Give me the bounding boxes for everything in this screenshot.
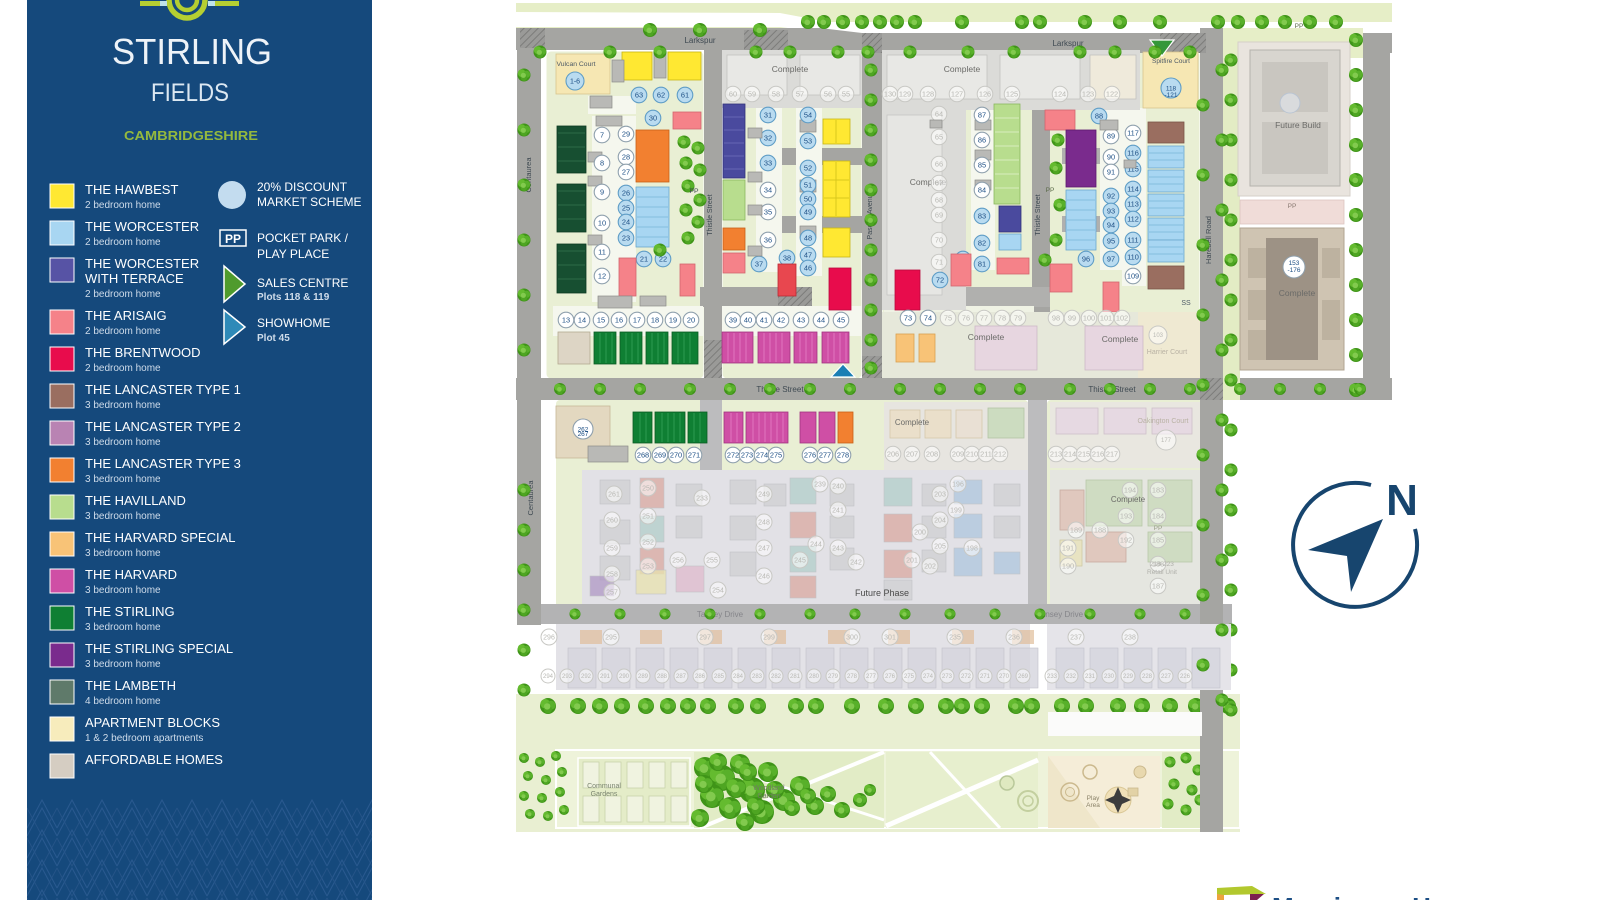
svg-text:203: 203	[934, 492, 946, 499]
svg-text:33: 33	[764, 159, 772, 168]
svg-text:244: 244	[810, 542, 822, 549]
svg-text:191: 191	[1062, 544, 1074, 553]
svg-text:66: 66	[935, 160, 943, 169]
svg-text:187: 187	[1152, 582, 1164, 591]
svg-text:41: 41	[760, 316, 768, 325]
svg-text:43: 43	[797, 316, 805, 325]
svg-text:73: 73	[904, 314, 912, 323]
svg-text:11: 11	[598, 248, 606, 257]
svg-text:29: 29	[622, 130, 630, 139]
svg-text:3 bedroom home: 3 bedroom home	[85, 511, 161, 522]
svg-text:PLAY PLACE: PLAY PLACE	[257, 247, 329, 261]
svg-text:92: 92	[1107, 192, 1115, 201]
svg-text:MARKET SCHEME: MARKET SCHEME	[257, 195, 361, 209]
svg-text:299: 299	[763, 635, 775, 642]
svg-text:38: 38	[783, 254, 791, 263]
svg-text:Morrissey Homes: Morrissey Homes	[1272, 892, 1504, 900]
svg-text:117: 117	[1127, 129, 1139, 138]
svg-text:3 bedroom home: 3 bedroom home	[85, 622, 161, 633]
svg-text:20: 20	[687, 316, 695, 325]
svg-text:242: 242	[850, 560, 862, 567]
svg-text:Future Build: Future Build	[1275, 120, 1321, 130]
svg-text:268: 268	[637, 451, 649, 460]
svg-text:204: 204	[934, 518, 946, 525]
svg-text:SALES CENTRE: SALES CENTRE	[257, 276, 348, 290]
svg-text:114: 114	[1127, 185, 1139, 194]
svg-text:251: 251	[642, 514, 654, 521]
svg-text:PP: PP	[225, 232, 241, 246]
svg-text:113: 113	[1127, 200, 1139, 209]
svg-text:233: 233	[1047, 674, 1058, 680]
svg-text:61: 61	[681, 91, 689, 100]
svg-text:2 bedroom home: 2 bedroom home	[85, 200, 161, 211]
svg-text:272: 272	[961, 674, 972, 680]
svg-text:291: 291	[600, 674, 611, 680]
svg-text:67: 67	[935, 179, 943, 188]
svg-text:284: 284	[733, 674, 744, 680]
svg-text:240: 240	[832, 484, 844, 491]
svg-text:88: 88	[1095, 112, 1103, 121]
svg-text:110: 110	[1127, 253, 1139, 262]
svg-text:243: 243	[832, 546, 844, 553]
svg-text:85: 85	[978, 161, 986, 170]
svg-text:93: 93	[1107, 207, 1115, 216]
svg-text:2 bedroom home: 2 bedroom home	[85, 237, 161, 248]
svg-text:THE STIRLING SPECIAL: THE STIRLING SPECIAL	[85, 641, 233, 656]
svg-text:285: 285	[714, 674, 725, 680]
svg-text:209: 209	[952, 450, 964, 459]
svg-text:40: 40	[744, 316, 752, 325]
svg-text:34: 34	[764, 186, 772, 195]
svg-text:Larkspur: Larkspur	[684, 36, 715, 45]
svg-text:70: 70	[935, 236, 943, 245]
svg-text:52: 52	[804, 164, 812, 173]
svg-text:-176: -176	[1287, 267, 1300, 274]
svg-text:THE LAMBETH: THE LAMBETH	[85, 678, 176, 693]
svg-text:254: 254	[712, 588, 724, 595]
svg-text:270: 270	[670, 451, 682, 460]
svg-text:THE LANCASTER TYPE 1: THE LANCASTER TYPE 1	[85, 382, 241, 397]
svg-text:Garden: Garden	[757, 793, 780, 800]
svg-text:THE BRENTWOOD: THE BRENTWOOD	[85, 345, 201, 360]
svg-text:230: 230	[1104, 674, 1115, 680]
svg-text:83: 83	[978, 212, 986, 221]
svg-text:1 & 2 bedroom apartments: 1 & 2 bedroom apartments	[85, 733, 203, 744]
svg-text:213: 213	[1050, 450, 1062, 459]
svg-text:90: 90	[1107, 153, 1115, 162]
svg-text:4 bedroom home: 4 bedroom home	[85, 696, 161, 707]
svg-text:275: 275	[770, 451, 782, 460]
svg-text:183: 183	[1152, 486, 1164, 495]
svg-text:63: 63	[635, 91, 643, 100]
svg-text:272: 272	[727, 451, 739, 460]
svg-text:37: 37	[755, 260, 763, 269]
svg-text:196: 196	[952, 482, 964, 489]
svg-text:THE WORCESTER: THE WORCESTER	[85, 219, 199, 234]
svg-text:269: 269	[654, 451, 666, 460]
svg-text:296: 296	[543, 635, 555, 642]
svg-text:91: 91	[1107, 168, 1115, 177]
svg-text:237: 237	[1070, 635, 1082, 642]
svg-text:238: 238	[1124, 635, 1136, 642]
svg-text:279: 279	[828, 674, 839, 680]
svg-text:277: 277	[819, 451, 831, 460]
svg-text:12: 12	[598, 272, 606, 281]
svg-text:Plots 118 & 119: Plots 118 & 119	[257, 292, 330, 303]
svg-text:86: 86	[978, 136, 986, 145]
svg-text:THE HAVILLAND: THE HAVILLAND	[85, 493, 186, 508]
svg-text:280: 280	[809, 674, 820, 680]
svg-text:30: 30	[649, 114, 657, 123]
svg-text:Tansey Drive: Tansey Drive	[697, 610, 744, 619]
svg-text:Complete: Complete	[1102, 334, 1139, 344]
svg-text:217: 217	[1106, 450, 1118, 459]
svg-text:103: 103	[1153, 333, 1164, 339]
svg-text:49: 49	[804, 208, 812, 217]
svg-text:50: 50	[804, 195, 812, 204]
svg-text:102: 102	[1116, 314, 1128, 323]
svg-text:35: 35	[764, 208, 772, 217]
svg-text:THE LANCASTER TYPE 3: THE LANCASTER TYPE 3	[85, 456, 241, 471]
svg-text:153: 153	[1289, 260, 1300, 267]
svg-text:2 bedroom home: 2 bedroom home	[85, 363, 161, 374]
svg-text:278: 278	[847, 674, 858, 680]
svg-text:273: 273	[942, 674, 953, 680]
svg-text:271: 271	[980, 674, 991, 680]
svg-text:Future Phase: Future Phase	[855, 588, 909, 598]
svg-text:232: 232	[1066, 674, 1077, 680]
svg-text:Complete: Complete	[944, 64, 981, 74]
svg-text:CAMBRIDGESHIRE: CAMBRIDGESHIRE	[124, 129, 258, 143]
svg-text:Gardens: Gardens	[591, 791, 618, 798]
svg-text:Spitfire Court: Spitfire Court	[1152, 58, 1190, 65]
svg-text:211: 211	[980, 450, 992, 459]
svg-text:99: 99	[1068, 314, 1076, 323]
svg-text:259: 259	[606, 546, 618, 553]
svg-text:POCKET PARK /: POCKET PARK /	[257, 231, 349, 245]
svg-text:45: 45	[837, 316, 845, 325]
svg-text:60: 60	[729, 90, 737, 99]
svg-text:190: 190	[1062, 562, 1074, 571]
svg-text:249: 249	[758, 492, 770, 499]
svg-text:64: 64	[935, 110, 943, 119]
svg-text:274: 274	[923, 674, 934, 680]
svg-text:2 bedroom home: 2 bedroom home	[85, 326, 161, 337]
svg-text:245: 245	[794, 558, 806, 565]
svg-text:-121: -121	[1164, 92, 1177, 99]
svg-text:301: 301	[884, 635, 896, 642]
svg-text:36: 36	[764, 236, 772, 245]
svg-text:276: 276	[804, 451, 816, 460]
svg-text:122: 122	[1106, 90, 1118, 99]
svg-text:AFFORDABLE HOMES: AFFORDABLE HOMES	[85, 752, 223, 767]
svg-text:Thistle Street: Thistle Street	[756, 385, 804, 394]
svg-text:46: 46	[804, 264, 812, 273]
svg-text:15: 15	[597, 316, 605, 325]
svg-text:116: 116	[1127, 149, 1139, 158]
svg-text:289: 289	[638, 674, 649, 680]
svg-text:282: 282	[771, 674, 782, 680]
svg-text:250: 250	[642, 486, 654, 493]
svg-text:Complete: Complete	[968, 332, 1005, 342]
svg-text:231: 231	[1085, 674, 1096, 680]
svg-text:267: 267	[578, 431, 589, 438]
svg-text:Thistle Street: Thistle Street	[707, 194, 714, 235]
svg-text:111: 111	[1127, 236, 1138, 245]
svg-text:293: 293	[562, 674, 573, 680]
svg-text:3 bedroom home: 3 bedroom home	[85, 659, 161, 670]
svg-text:253: 253	[642, 564, 654, 571]
svg-text:210: 210	[966, 450, 978, 459]
svg-text:258: 258	[606, 572, 618, 579]
svg-text:94: 94	[1107, 221, 1115, 230]
svg-text:PP: PP	[1288, 203, 1297, 210]
svg-text:188: 188	[1094, 526, 1106, 535]
svg-text:THE HARVARD SPECIAL: THE HARVARD SPECIAL	[85, 530, 236, 545]
svg-text:3 bedroom home: 3 bedroom home	[85, 437, 161, 448]
svg-text:3 bedroom home: 3 bedroom home	[85, 474, 161, 485]
svg-text:16: 16	[615, 316, 623, 325]
svg-text:275: 275	[904, 674, 915, 680]
svg-text:208: 208	[926, 450, 938, 459]
svg-text:227: 227	[1161, 674, 1172, 680]
svg-text:1-6: 1-6	[570, 79, 580, 86]
svg-text:76: 76	[962, 314, 970, 323]
svg-text:THE HAWBEST: THE HAWBEST	[85, 182, 178, 197]
svg-text:23: 23	[622, 234, 630, 243]
svg-text:95: 95	[1107, 237, 1115, 246]
svg-text:APARTMENT BLOCKS: APARTMENT BLOCKS	[85, 715, 220, 730]
svg-text:128: 128	[922, 90, 934, 99]
svg-text:257: 257	[606, 590, 618, 597]
svg-text:248: 248	[758, 520, 770, 527]
svg-text:205: 205	[934, 544, 946, 551]
svg-text:79: 79	[1014, 314, 1022, 323]
svg-text:75: 75	[944, 314, 952, 323]
svg-text:87: 87	[978, 111, 986, 120]
svg-text:SS: SS	[1181, 300, 1191, 307]
svg-text:56: 56	[824, 90, 832, 99]
svg-text:273: 273	[741, 451, 753, 460]
svg-text:177: 177	[1161, 438, 1172, 444]
svg-text:Thistle Street: Thistle Street	[1035, 194, 1042, 235]
svg-text:123: 123	[1082, 90, 1094, 99]
svg-text:65: 65	[935, 133, 943, 142]
svg-text:202: 202	[924, 564, 936, 571]
svg-text:101: 101	[1100, 314, 1112, 323]
svg-text:125: 125	[1006, 90, 1018, 99]
svg-text:7: 7	[600, 131, 604, 140]
svg-text:53: 53	[804, 137, 812, 146]
svg-text:THE LANCASTER TYPE 2: THE LANCASTER TYPE 2	[85, 419, 241, 434]
svg-text:Harrier Court: Harrier Court	[1147, 349, 1188, 356]
svg-text:THE WORCESTER: THE WORCESTER	[85, 256, 199, 271]
svg-text:17: 17	[633, 316, 641, 325]
svg-text:55: 55	[842, 90, 850, 99]
svg-text:127: 127	[951, 90, 963, 99]
svg-text:236: 236	[1008, 635, 1020, 642]
svg-text:247: 247	[758, 546, 770, 553]
svg-text:274: 274	[756, 451, 768, 460]
svg-text:89: 89	[1107, 132, 1115, 141]
svg-text:Complete: Complete	[895, 418, 930, 427]
svg-text:215: 215	[1078, 450, 1090, 459]
svg-text:97: 97	[1107, 255, 1115, 264]
svg-text:25: 25	[622, 204, 630, 213]
svg-text:199: 199	[950, 508, 962, 515]
svg-text:260: 260	[606, 518, 618, 525]
svg-text:59: 59	[748, 90, 756, 99]
svg-text:109: 109	[1127, 272, 1139, 281]
svg-text:290: 290	[619, 674, 630, 680]
svg-text:FIELDS: FIELDS	[151, 79, 229, 107]
svg-text:226: 226	[1180, 674, 1191, 680]
svg-text:96: 96	[1082, 255, 1090, 264]
svg-text:71: 71	[935, 258, 943, 267]
svg-text:Vulcan Court: Vulcan Court	[556, 61, 595, 68]
svg-text:185: 185	[1152, 536, 1164, 545]
svg-text:Woodland: Woodland	[753, 785, 785, 792]
svg-text:39: 39	[729, 316, 737, 325]
svg-text:189: 189	[1070, 526, 1082, 535]
svg-text:292: 292	[581, 674, 592, 680]
svg-text:246: 246	[758, 574, 770, 581]
svg-text:283: 283	[752, 674, 763, 680]
svg-text:216: 216	[1092, 450, 1104, 459]
svg-text:44: 44	[817, 316, 825, 325]
svg-text:8: 8	[600, 159, 604, 168]
svg-text:THE STIRLING: THE STIRLING	[85, 604, 175, 619]
svg-text:68: 68	[935, 196, 943, 205]
svg-text:Area: Area	[1086, 802, 1100, 809]
svg-text:207: 207	[906, 450, 918, 459]
svg-text:294: 294	[543, 674, 554, 680]
svg-text:124: 124	[1054, 90, 1066, 99]
svg-text:129: 129	[899, 90, 911, 99]
svg-text:206: 206	[887, 450, 899, 459]
svg-text:3 bedroom home: 3 bedroom home	[85, 585, 161, 596]
svg-text:255: 255	[706, 558, 718, 565]
svg-text:WITH TERRACE: WITH TERRACE	[85, 271, 184, 286]
svg-text:241: 241	[832, 508, 844, 515]
svg-text:198: 198	[966, 546, 978, 553]
svg-text:78: 78	[998, 314, 1006, 323]
svg-text:72: 72	[936, 276, 944, 285]
svg-text:32: 32	[764, 134, 772, 143]
svg-text:252: 252	[642, 540, 654, 547]
svg-text:STIRLING: STIRLING	[112, 31, 272, 72]
svg-text:229: 229	[1123, 674, 1134, 680]
svg-text:31: 31	[764, 111, 772, 120]
svg-text:281: 281	[790, 674, 801, 680]
svg-text:130: 130	[884, 90, 896, 99]
svg-text:214: 214	[1064, 450, 1076, 459]
svg-text:N: N	[1386, 476, 1418, 525]
svg-text:48: 48	[804, 234, 812, 243]
svg-text:286: 286	[695, 674, 706, 680]
svg-text:194: 194	[1124, 486, 1136, 495]
svg-text:256: 256	[672, 558, 684, 565]
svg-text:126: 126	[979, 90, 991, 99]
svg-text:3 bedroom home: 3 bedroom home	[85, 400, 161, 411]
svg-text:239: 239	[814, 482, 826, 489]
svg-text:193: 193	[1120, 512, 1132, 521]
svg-text:26: 26	[622, 189, 630, 198]
svg-text:82: 82	[978, 239, 986, 248]
svg-text:20% DISCOUNT: 20% DISCOUNT	[257, 180, 348, 194]
svg-text:42: 42	[777, 316, 785, 325]
svg-text:271: 271	[688, 451, 700, 460]
svg-text:57: 57	[796, 90, 804, 99]
svg-text:69: 69	[935, 211, 943, 220]
svg-text:218-223: 218-223	[1150, 561, 1174, 568]
svg-text:233: 233	[696, 496, 708, 503]
svg-text:269: 269	[1018, 674, 1029, 680]
svg-text:47: 47	[804, 251, 812, 260]
svg-text:228: 228	[1142, 674, 1153, 680]
svg-text:81: 81	[978, 260, 986, 269]
svg-text:74: 74	[924, 314, 932, 323]
svg-text:Communal: Communal	[587, 783, 621, 790]
svg-text:261: 261	[608, 492, 620, 499]
svg-text:54: 54	[804, 111, 812, 120]
svg-text:201: 201	[906, 558, 918, 565]
svg-text:77: 77	[980, 314, 988, 323]
svg-text:184: 184	[1152, 512, 1164, 521]
svg-text:PP: PP	[1046, 187, 1055, 194]
svg-text:200: 200	[914, 530, 926, 537]
svg-text:235: 235	[949, 635, 961, 642]
svg-text:THE ARISAIG: THE ARISAIG	[85, 308, 167, 323]
svg-text:62: 62	[657, 91, 665, 100]
svg-text:PP: PP	[689, 188, 699, 195]
svg-text:Complete: Complete	[772, 64, 809, 74]
svg-text:288: 288	[657, 674, 668, 680]
svg-text:84: 84	[978, 186, 986, 195]
svg-text:THE HARVARD: THE HARVARD	[85, 567, 177, 582]
svg-text:212: 212	[994, 450, 1006, 459]
svg-text:295: 295	[605, 635, 617, 642]
svg-text:277: 277	[866, 674, 877, 680]
svg-text:10: 10	[598, 219, 606, 228]
svg-text:297: 297	[699, 635, 711, 642]
svg-text:Play: Play	[1087, 795, 1100, 802]
svg-text:3 bedroom home: 3 bedroom home	[85, 548, 161, 559]
svg-text:18: 18	[651, 316, 659, 325]
svg-text:300: 300	[846, 635, 858, 642]
svg-text:28: 28	[622, 153, 630, 162]
svg-text:270: 270	[999, 674, 1010, 680]
svg-text:278: 278	[837, 451, 849, 460]
svg-text:2 bedroom home: 2 bedroom home	[85, 289, 161, 300]
svg-text:100: 100	[1083, 314, 1095, 323]
svg-text:192: 192	[1120, 536, 1132, 545]
svg-text:51: 51	[804, 181, 812, 190]
svg-text:Complete: Complete	[1279, 288, 1316, 298]
svg-text:PP: PP	[1154, 525, 1163, 532]
svg-text:287: 287	[676, 674, 687, 680]
svg-text:27: 27	[622, 168, 630, 177]
svg-text:98: 98	[1052, 314, 1060, 323]
svg-text:14: 14	[578, 316, 586, 325]
svg-text:SHOWHOME: SHOWHOME	[257, 316, 330, 330]
svg-text:112: 112	[1127, 215, 1139, 224]
svg-text:24: 24	[622, 218, 630, 227]
svg-text:PP: PP	[1295, 23, 1304, 30]
svg-text:19: 19	[669, 316, 677, 325]
svg-text:Oakington Court: Oakington Court	[1138, 418, 1189, 425]
svg-text:Plot 45: Plot 45	[257, 333, 290, 344]
